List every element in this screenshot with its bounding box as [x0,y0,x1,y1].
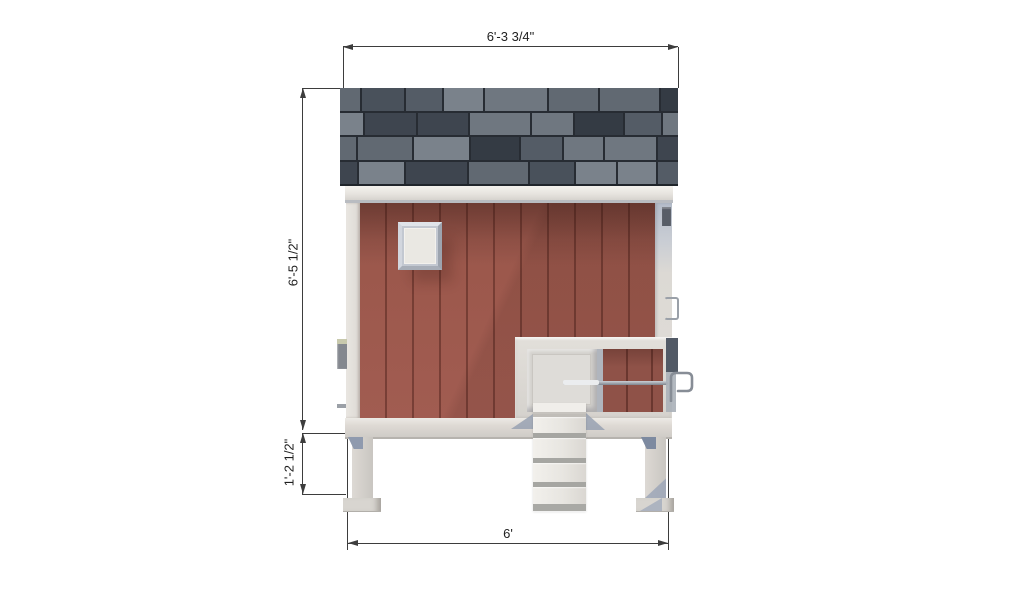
roof-shingle [658,137,678,160]
dim-left-lower-ext-bottom [302,494,346,495]
dim-top-line [343,46,678,47]
roof-shingle [658,162,678,184]
roof-shingle [625,113,662,135]
roof-shingle [532,113,572,135]
ramp-tread [533,482,586,487]
left-corner-trim [346,203,360,418]
floor-skid-band [345,418,672,439]
roof-shingle [530,162,575,184]
dim-left-upper-arrow-top-icon [300,88,306,98]
dim-bottom-arrow-right-icon [658,540,668,546]
roof-shingle [600,88,658,111]
dim-bottom-line [348,543,668,544]
ramp-tread [533,504,586,511]
drawing-canvas: 6'-3 3/4" 6'-5 1/2" 1'-2 1/2" 6' [0,0,1024,603]
wall-vent-panel [404,228,436,264]
ramp-top-cap [533,403,586,414]
roof-shingle [618,162,657,184]
dim-top-arrow-right-icon [668,44,678,50]
ramp-tread [533,414,586,417]
ramp-tread [533,458,586,463]
roof-shingle [663,113,678,135]
ramp-tread [533,433,586,438]
right-top-hinge [662,207,671,226]
roof-shingle [549,88,598,111]
left-wall-fastener [337,404,346,408]
roof-shingle [340,162,357,184]
dim-left-lower-label: 1'-2 1/2" [282,418,297,508]
dim-left-lower-arrow-bottom-icon [300,484,306,494]
dim-top-ext-left [343,47,344,88]
roof-shingle [406,162,467,184]
fascia-board [345,186,673,203]
roof-shingle [340,113,363,135]
dim-top-label: 6'-3 3/4" [343,29,678,44]
dim-bottom-ext-right [668,430,669,550]
dim-bottom-label: 6' [348,526,668,541]
roof-shingle [365,113,415,135]
roof-shingle [575,113,623,135]
roof-shingle [414,137,469,160]
dim-left-ext-mid [302,433,346,434]
roof-shingle [340,137,356,160]
dim-top-ext-right [678,47,679,88]
roof-shingle [661,88,679,111]
chicken-ramp [533,403,586,511]
roof-shingle [418,113,468,135]
roof-shingle [444,88,483,111]
dim-left-lower-arrow-top-icon [300,433,306,443]
roof-shingle [471,137,519,160]
roof-shingle [470,113,531,135]
right-eye-hook [664,297,679,320]
dim-left-upper-label: 6'-5 1/2" [286,218,301,308]
roof-shingle [358,137,412,160]
roof-shingle [362,88,404,111]
dim-left-upper-ext-top [302,88,342,89]
hook-latch-icon [666,364,696,402]
roof-shingle [605,137,656,160]
dim-top-arrow-left-icon [343,44,353,50]
roof-shingle [340,88,360,111]
roof-shingle [576,162,615,184]
roof-shingle [469,162,528,184]
right-leg-bracket [641,437,656,449]
roof-shingle [359,162,404,184]
left-foot-pad [343,498,381,512]
left-wall-hinge-cap [337,339,347,344]
wall-vent [398,222,442,270]
dim-left-upper-line [302,88,303,430]
door-pull-rod-handle [563,380,599,385]
roof-shingle [406,88,443,111]
roof-shingle [564,137,603,160]
dim-bottom-arrow-left-icon [348,540,358,546]
roof-shingle [485,88,547,111]
roof-shingle [521,137,562,160]
shingle-roof [340,88,678,186]
dim-left-upper-arrow-bottom-icon [300,420,306,430]
dim-bottom-ext-left [347,433,348,550]
left-leg-bracket [348,437,363,449]
